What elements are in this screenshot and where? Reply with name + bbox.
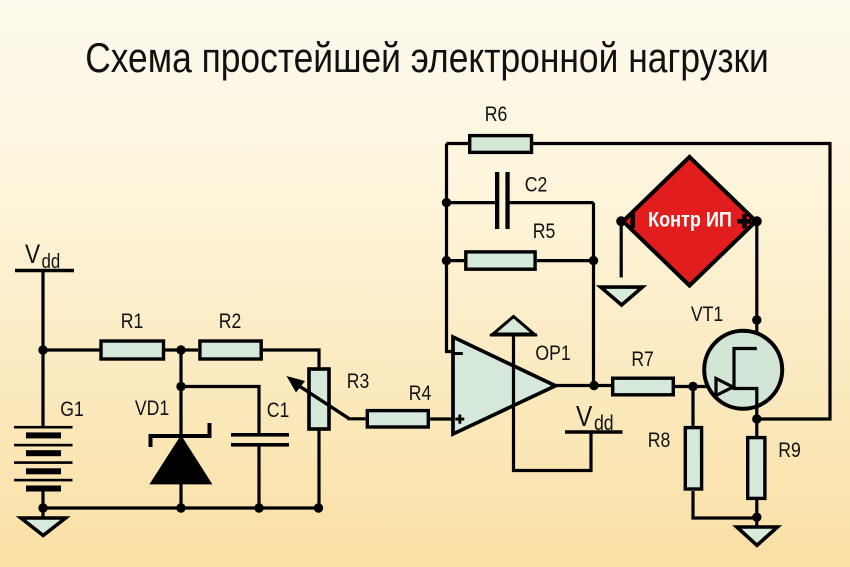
svg-text:R2: R2	[219, 310, 242, 334]
svg-text:R6: R6	[485, 103, 508, 127]
svg-text:dd: dd	[594, 412, 614, 436]
svg-text:R1: R1	[121, 310, 144, 334]
svg-text:R5: R5	[533, 220, 556, 244]
svg-text:R4: R4	[409, 382, 432, 406]
svg-text:VT1: VT1	[691, 303, 723, 327]
svg-text:Схема простейшей электронной н: Схема простейшей электронной нагрузки	[85, 35, 769, 81]
svg-text:V: V	[25, 239, 40, 269]
svg-text:R9: R9	[778, 439, 801, 463]
svg-text:VD1: VD1	[135, 397, 169, 421]
svg-text:C2: C2	[525, 173, 548, 197]
svg-text:R3: R3	[347, 370, 370, 394]
svg-text:R8: R8	[648, 429, 671, 453]
svg-text:G1: G1	[60, 398, 84, 422]
svg-text:C1: C1	[267, 399, 290, 423]
svg-text:OP1: OP1	[535, 342, 570, 366]
svg-text:R7: R7	[631, 348, 654, 372]
svg-text:Контр ИП: Контр ИП	[648, 208, 732, 232]
svg-text:V: V	[576, 400, 592, 432]
